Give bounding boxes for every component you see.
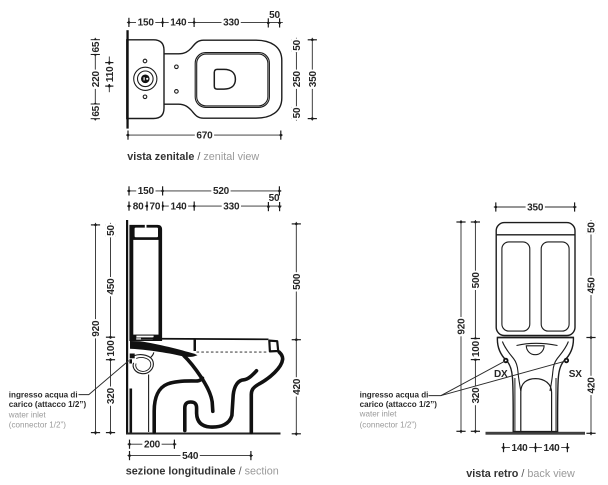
svg-text:350: 350 <box>527 202 544 213</box>
svg-text:520: 520 <box>213 186 230 197</box>
svg-text:50: 50 <box>587 222 598 233</box>
svg-text:920: 920 <box>457 318 468 335</box>
svg-text:150: 150 <box>138 186 155 197</box>
svg-text:50: 50 <box>106 225 117 236</box>
svg-text:250: 250 <box>292 71 303 88</box>
svg-text:50: 50 <box>292 107 303 118</box>
svg-text:SX: SX <box>569 369 582 380</box>
svg-text:500: 500 <box>292 273 303 290</box>
svg-text:450: 450 <box>106 278 117 295</box>
svg-text:ingresso acqua di: ingresso acqua di <box>9 391 78 400</box>
svg-text:(connector 1/2”): (connector 1/2”) <box>9 421 66 430</box>
svg-text:420: 420 <box>292 378 303 395</box>
svg-text:330: 330 <box>223 18 240 29</box>
svg-text:670: 670 <box>196 130 213 141</box>
svg-text:500: 500 <box>471 272 482 289</box>
svg-text:450: 450 <box>587 277 598 294</box>
svg-text:vista retro / back view: vista retro / back view <box>466 468 575 480</box>
svg-text:150: 150 <box>138 18 155 29</box>
svg-text:50: 50 <box>269 193 280 204</box>
svg-text:140: 140 <box>543 443 560 454</box>
svg-text:water inlet: water inlet <box>359 410 398 419</box>
svg-text:140: 140 <box>170 201 187 212</box>
svg-text:65: 65 <box>91 105 102 116</box>
svg-text:350: 350 <box>308 71 319 88</box>
svg-text:ingresso acqua di: ingresso acqua di <box>360 390 429 399</box>
svg-text:140: 140 <box>511 443 528 454</box>
svg-text:220: 220 <box>91 71 102 88</box>
svg-text:100: 100 <box>106 340 117 357</box>
svg-text:50: 50 <box>269 10 280 21</box>
svg-text:140: 140 <box>170 18 187 29</box>
svg-text:carico (attacco 1/2”): carico (attacco 1/2”) <box>360 400 438 409</box>
svg-text:420: 420 <box>587 377 598 394</box>
svg-text:DX: DX <box>494 369 508 380</box>
svg-text:sezione longitudinale / sectio: sezione longitudinale / section <box>126 466 279 478</box>
svg-text:(connector 1/2”): (connector 1/2”) <box>360 420 417 429</box>
svg-text:920: 920 <box>91 320 102 337</box>
svg-text:water inlet: water inlet <box>8 410 47 419</box>
svg-text:320: 320 <box>106 387 117 404</box>
svg-text:330: 330 <box>223 201 240 212</box>
svg-text:80: 80 <box>133 201 144 212</box>
svg-text:70: 70 <box>150 201 161 212</box>
svg-text:540: 540 <box>182 451 199 462</box>
svg-text:carico (attacco 1/2”): carico (attacco 1/2”) <box>9 400 87 409</box>
svg-text:100: 100 <box>471 340 482 357</box>
svg-text:110: 110 <box>105 66 116 82</box>
svg-text:200: 200 <box>144 440 161 451</box>
svg-text:65: 65 <box>91 41 102 52</box>
svg-text:320: 320 <box>471 387 482 404</box>
svg-text:vista zenitale / zenital view: vista zenitale / zenital view <box>127 151 259 163</box>
svg-text:50: 50 <box>292 39 303 50</box>
